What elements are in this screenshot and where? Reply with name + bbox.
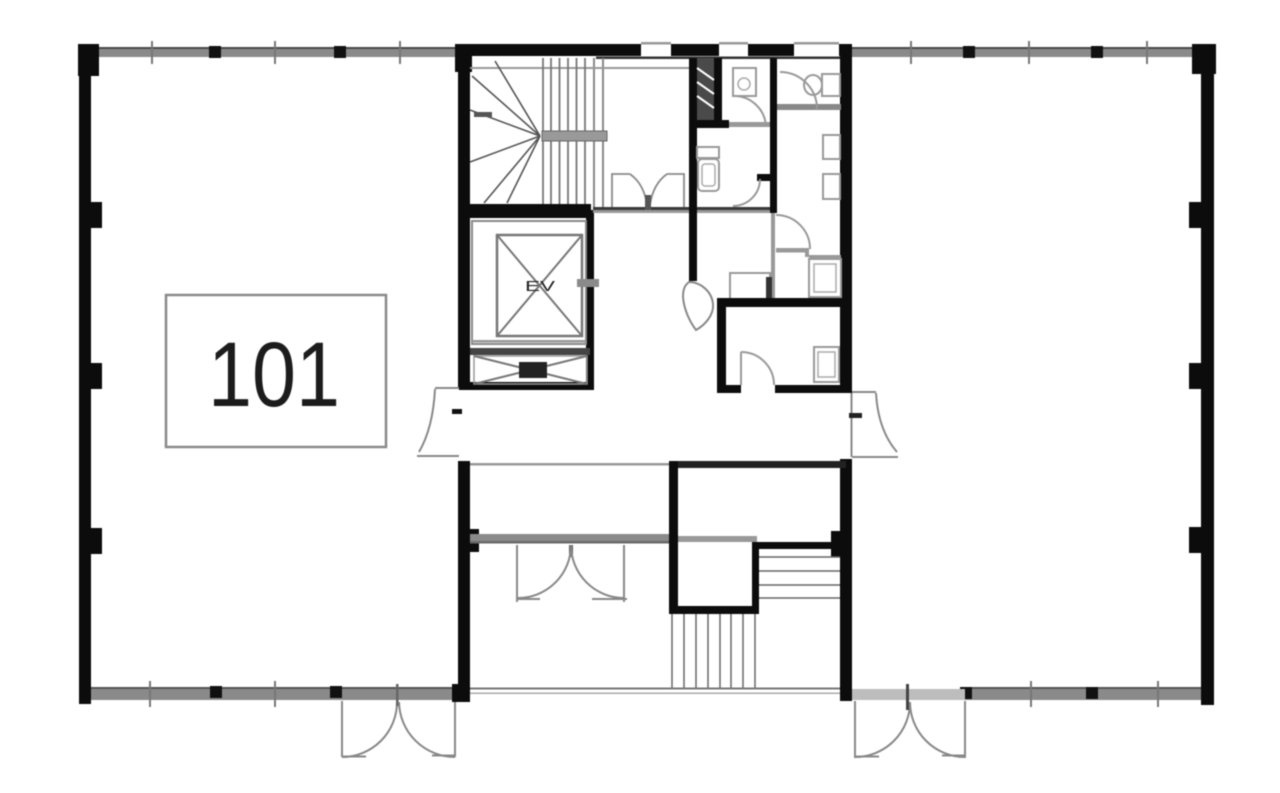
svg-text:EV: EV — [525, 278, 555, 295]
svg-text:101: 101 — [208, 324, 340, 426]
